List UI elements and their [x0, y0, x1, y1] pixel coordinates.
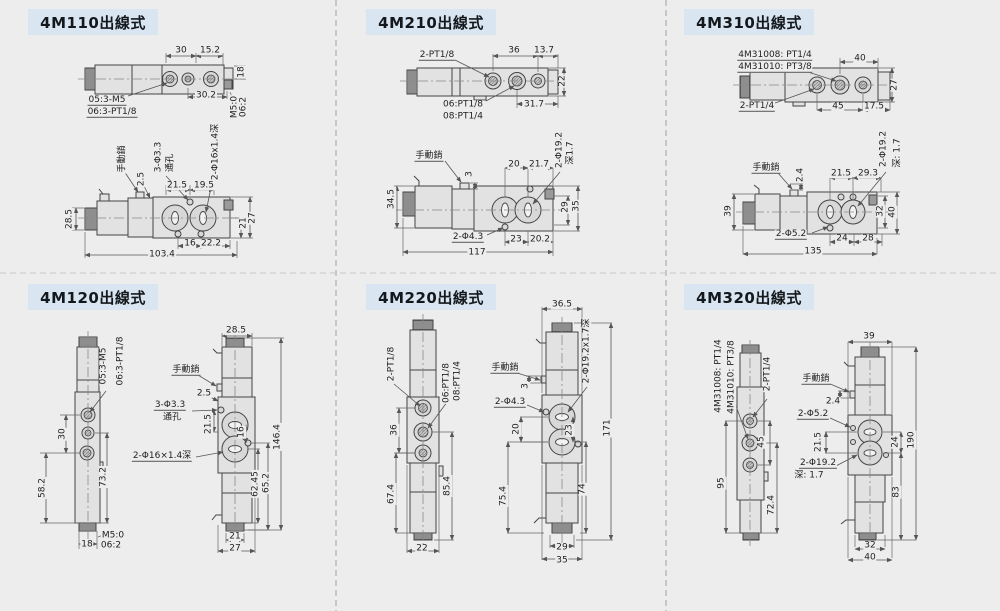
dim-label: 手動銷: [171, 366, 200, 376]
dim-label: 135: [803, 247, 822, 256]
dim-label: 28.5: [65, 208, 74, 230]
dim-label: 20: [507, 160, 520, 169]
dim-label: 15.2: [199, 46, 221, 55]
panel-badge-4m120: 4M120出線式: [28, 284, 158, 310]
dim-label: 21.5: [814, 431, 823, 453]
dim-label: 62.45: [251, 470, 260, 498]
panel-badge-4m210: 4M210出線式: [366, 9, 496, 35]
dim-label: 16: [183, 239, 196, 248]
dim-label: 22: [415, 544, 428, 553]
catalog-page: 4M110出線式 4M210出線式 4M310出線式 4M120出線式 4M22…: [0, 0, 1000, 611]
dim-label: 27: [248, 211, 257, 224]
dim-label: 103.4: [148, 250, 176, 259]
dim-label: 06:2: [100, 541, 122, 550]
dim-label: 29: [555, 543, 568, 552]
dim-label: 21.7: [528, 160, 550, 169]
dim-label: 06:3-PT1/8: [87, 108, 138, 118]
dim-label: 18: [80, 540, 93, 549]
dim-label: 手動銷: [751, 164, 780, 174]
dim-label: 13.7: [533, 46, 555, 55]
dim-label: 22.2: [200, 239, 222, 248]
dim-label: 39: [862, 332, 875, 341]
drawing-4m320-side-view: [825, 342, 916, 560]
dim-label: 通孔: [166, 153, 175, 173]
dim-label: 39: [724, 204, 733, 217]
dim-label: 30: [174, 46, 187, 55]
dim-label: 2-Φ16x1.4深: [211, 123, 220, 181]
dim-label: 手動銷: [801, 375, 830, 385]
dim-label: 06:2: [239, 96, 248, 118]
dim-label: 2.4: [825, 397, 841, 406]
dim-label: 45: [831, 102, 844, 111]
dim-label: 31.7: [523, 100, 545, 109]
dim-label: 深: 1.7: [893, 137, 902, 168]
dim-label: 36.5: [551, 300, 573, 309]
dim-label: 24: [891, 435, 900, 448]
dim-label: 2.4: [796, 167, 805, 183]
dim-label: 146.4: [273, 423, 282, 451]
dim-label: 75.4: [499, 485, 508, 507]
dim-label: 32: [876, 204, 885, 217]
dim-label: 06:PT1/8: [442, 362, 451, 404]
dim-label: 2-PT1/8: [387, 346, 396, 382]
dim-label: 73.2: [99, 466, 108, 488]
dim-label: 83: [892, 485, 901, 498]
dim-label: 2.5: [196, 389, 212, 398]
dim-label: 35: [572, 199, 581, 212]
dim-label: 深1.7: [566, 140, 575, 165]
drawing-4m210-side-view: [394, 161, 580, 256]
dim-label: 05:3-M5: [88, 96, 127, 106]
dim-label: 23: [565, 423, 574, 436]
dim-label: 18: [237, 65, 246, 78]
dim-label: 2-Φ5.2: [775, 230, 807, 240]
dim-label: 05:3-M5: [99, 347, 108, 386]
dim-label: 19.5: [193, 181, 215, 190]
dim-label: 22: [558, 74, 567, 87]
dim-label: 2-PT1/8: [419, 51, 455, 61]
dim-label: 手動銷: [490, 364, 519, 374]
dim-label: 21.5: [166, 181, 188, 190]
dim-label: 21.5: [204, 413, 213, 435]
dim-label: 36: [507, 46, 520, 55]
dim-label: 06:PT1/8: [442, 100, 484, 109]
dim-label: 4M31008: PT1/4: [737, 51, 812, 61]
dim-label: 4M31010: PT3/8: [737, 63, 812, 73]
dim-label: 通孔: [162, 413, 182, 422]
dim-label: 24: [835, 234, 848, 243]
dim-label: 27: [890, 78, 899, 91]
dim-label: 32: [863, 541, 876, 550]
dim-label: 20.2: [529, 235, 551, 244]
dim-label: 29.3: [857, 169, 879, 178]
dim-label: 27: [228, 544, 241, 553]
dim-label: 手動銷: [414, 152, 443, 162]
dim-label: 4M31010: PT3/8: [727, 339, 736, 414]
dim-label: 21.5: [830, 169, 852, 178]
dim-label: 16: [237, 425, 246, 438]
dim-label: 29: [561, 200, 570, 213]
dim-label: 21: [228, 532, 241, 541]
dim-label: 117: [467, 248, 486, 257]
panel-badge-4m110: 4M110出線式: [28, 9, 158, 35]
dim-label: 17.5: [863, 102, 885, 111]
dim-label: 58.2: [38, 477, 47, 499]
dim-label: 手動銷: [118, 144, 127, 173]
drawing-4m220-plan-view: [394, 314, 454, 553]
dim-label: 28: [861, 234, 874, 243]
dim-label: 深: 1.7: [793, 471, 824, 480]
dim-label: 20: [512, 422, 521, 435]
dim-label: 3: [465, 170, 474, 178]
dim-label: 2.5: [137, 171, 146, 187]
dim-label: 40: [853, 54, 866, 63]
dim-label: 45: [757, 435, 766, 448]
drawing-4m120-side-view: [192, 332, 284, 553]
dim-label: 34.5: [387, 188, 396, 210]
dim-label: 40: [888, 205, 897, 218]
dim-label: 35: [555, 556, 568, 565]
panel-badge-4m320: 4M320出線式: [684, 284, 814, 310]
dim-label: 85.4: [443, 475, 452, 497]
dim-label: 3: [521, 382, 530, 390]
dim-label: 28.5: [225, 326, 247, 335]
dim-label: 4M31008: PT1/4: [714, 338, 723, 413]
dim-label: 23: [509, 235, 522, 244]
dim-label: 72.4: [767, 494, 776, 516]
dim-label: 30: [58, 427, 67, 440]
dim-label: 95: [717, 476, 726, 489]
dim-label: 3-Φ3.3: [154, 401, 186, 411]
dim-label: 2-Φ5.2: [797, 410, 829, 420]
dim-label: 2-Φ19.2: [799, 459, 837, 469]
drawing-4m220-side-view: [507, 307, 613, 560]
dim-label: 2-Φ19.2x1.7深: [582, 318, 591, 385]
dim-label: 30.2: [195, 91, 217, 100]
dim-label: 08:PT1/4: [453, 360, 462, 402]
dim-label: 2-Φ16×1.4深: [132, 452, 192, 462]
dim-label: 65.2: [262, 472, 271, 494]
dim-label: 06:3-PT1/8: [116, 336, 125, 387]
dim-label: 08:PT1/4: [442, 112, 484, 121]
dim-label: 74: [578, 482, 587, 495]
dim-label: 2-PT1/4: [763, 356, 772, 392]
dim-label: 40: [863, 553, 876, 562]
dim-label: 2-PT1/4: [739, 102, 775, 112]
dim-label: 3-Φ3.3: [154, 141, 163, 173]
dim-label: 2-Φ4.3: [452, 233, 484, 243]
dim-label: 190: [907, 430, 916, 449]
dim-label: 2-Φ19.2: [879, 130, 888, 168]
panel-badge-4m310: 4M310出線式: [684, 9, 814, 35]
dim-label: 36: [390, 423, 399, 436]
dim-label: 2-Φ19.2: [555, 131, 564, 169]
drawing-4m110-side-view: [72, 163, 253, 258]
panel-badge-4m220: 4M220出線式: [366, 284, 496, 310]
dim-label: 67.4: [387, 483, 396, 505]
dim-label: 171: [603, 418, 612, 437]
dim-label: 2-Φ4.3: [494, 398, 526, 408]
